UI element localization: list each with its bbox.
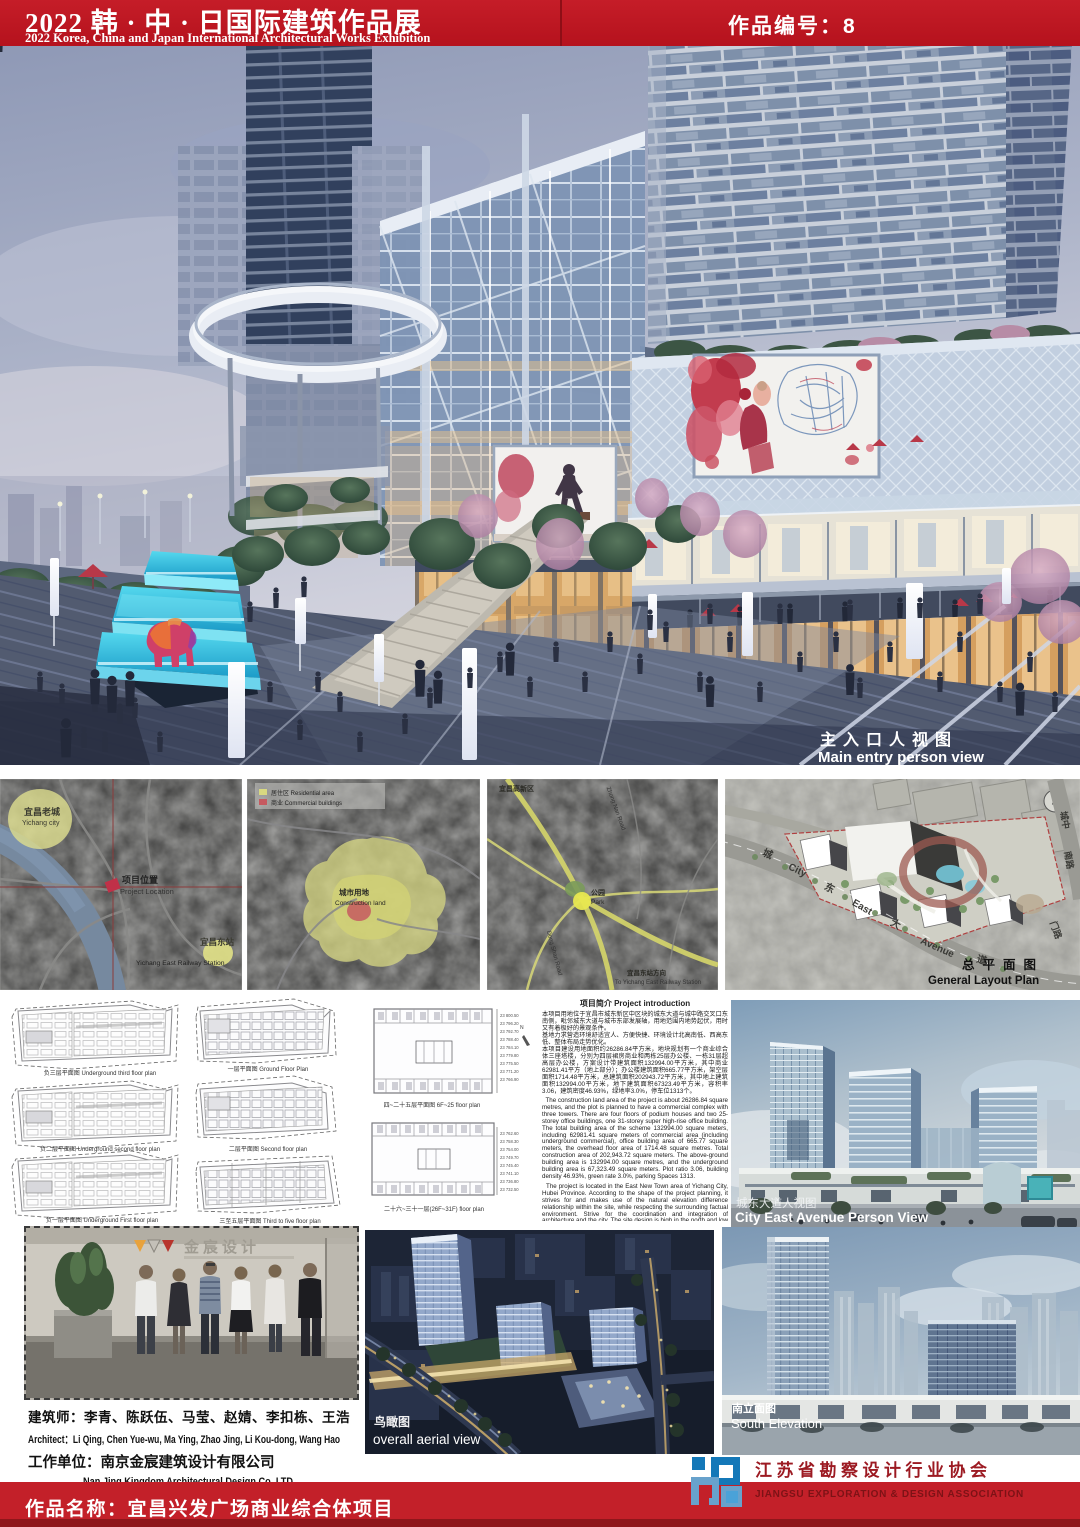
svg-text:二层平面图 Second floor plan: 二层平面图 Second floor plan (229, 1146, 307, 1153)
svg-text:23 771.20: 23 771.20 (500, 1069, 519, 1074)
svg-text:South Elevation: South Elevation (731, 1416, 822, 1431)
svg-text:南立面图: 南立面图 (732, 1401, 776, 1415)
svg-text:Yichang city: Yichang city (22, 820, 60, 827)
svg-text:金宸设计: 金宸设计 (183, 1238, 260, 1256)
svg-text:鸟瞰图: 鸟瞰图 (374, 1414, 410, 1429)
svg-text:Main entry person view: Main entry person view (818, 749, 984, 765)
svg-text:负三层平面图 Underground third floo: 负三层平面图 Underground third floor plan (44, 1069, 156, 1077)
svg-text:主入口人视图: 主入口人视图 (820, 730, 958, 749)
svg-text:江苏省勘察设计行业协会: 江苏省勘察设计行业协会 (755, 1460, 992, 1480)
svg-text:商业 Commercial buildings: 商业 Commercial buildings (271, 799, 342, 807)
svg-text:项目位置: 项目位置 (122, 874, 158, 885)
svg-text:Yichang East Railway Station: Yichang East Railway Station (136, 960, 225, 967)
svg-text:23 749.70: 23 749.70 (500, 1155, 519, 1160)
svg-text:23 788.40: 23 788.40 (500, 1037, 519, 1042)
svg-text:N: N (520, 1025, 524, 1031)
svg-text:城东大道人视图: 城东大道人视图 (736, 1196, 817, 1210)
svg-text:General Layout Plan: General Layout Plan (928, 975, 1039, 987)
svg-text:23 779.80: 23 779.80 (500, 1053, 519, 1058)
svg-text:23 792.70: 23 792.70 (500, 1029, 519, 1034)
svg-text:23 784.10: 23 784.10 (500, 1045, 519, 1050)
svg-text:城市用地: 城市用地 (339, 887, 369, 897)
svg-text:overall aerial view: overall aerial view (373, 1432, 481, 1447)
svg-text:23 741.10: 23 741.10 (500, 1171, 519, 1176)
svg-text:四~二十五层平面图 6F~25 floor plan: 四~二十五层平面图 6F~25 floor plan (384, 1101, 481, 1109)
svg-text:宜昌东站方向: 宜昌东站方向 (627, 968, 667, 977)
svg-text:负二层平面图 Underground second flo: 负二层平面图 Underground second floor plan (40, 1145, 160, 1153)
svg-text:23 754.00: 23 754.00 (500, 1147, 519, 1152)
svg-text:负一层平面图 Underground First floo: 负一层平面图 Underground First floor plan (46, 1216, 158, 1224)
svg-text:Project Location: Project Location (120, 887, 174, 896)
svg-text:23 766.90: 23 766.90 (500, 1077, 519, 1082)
svg-text:二十六~三十一层(26F~31F) floor plan: 二十六~三十一层(26F~31F) floor plan (384, 1205, 484, 1213)
svg-text:23 758.30: 23 758.30 (500, 1139, 519, 1144)
svg-text:宜昌高新区: 宜昌高新区 (499, 784, 534, 793)
svg-text:宜昌老城: 宜昌老城 (24, 806, 60, 817)
svg-text:23 732.50: 23 732.50 (500, 1187, 519, 1192)
svg-text:23 745.40: 23 745.40 (500, 1163, 519, 1168)
svg-text:23 775.50: 23 775.50 (500, 1061, 519, 1066)
svg-text:23 762.60: 23 762.60 (500, 1131, 519, 1136)
svg-text:三至五层平面图 Third to five floor p: 三至五层平面图 Third to five floor plan (219, 1218, 320, 1225)
svg-text:23 800.50: 23 800.50 (500, 1013, 519, 1018)
svg-text:JIANGSU EXPLORATION & DESIGN A: JIANGSU EXPLORATION & DESIGN ASSOCIATION (755, 1489, 1024, 1500)
svg-text:To Yichang East Railway Statio: To Yichang East Railway Station (615, 980, 701, 986)
svg-text:Park: Park (591, 899, 605, 906)
svg-text:一层平面图 Ground Floor Plan: 一层平面图 Ground Floor Plan (228, 1066, 309, 1073)
svg-text:23 796.20: 23 796.20 (500, 1021, 519, 1026)
svg-text:Construction land: Construction land (335, 900, 386, 907)
svg-text:总平面图: 总平面图 (962, 957, 1044, 972)
svg-text:居住区 Residential area: 居住区 Residential area (271, 789, 335, 797)
svg-text:宜昌东站: 宜昌东站 (200, 937, 235, 947)
svg-text:City East Avenue Person View: City East Avenue Person View (735, 1210, 929, 1225)
svg-text:23 736.80: 23 736.80 (500, 1179, 519, 1184)
svg-text:公园: 公园 (591, 888, 605, 897)
